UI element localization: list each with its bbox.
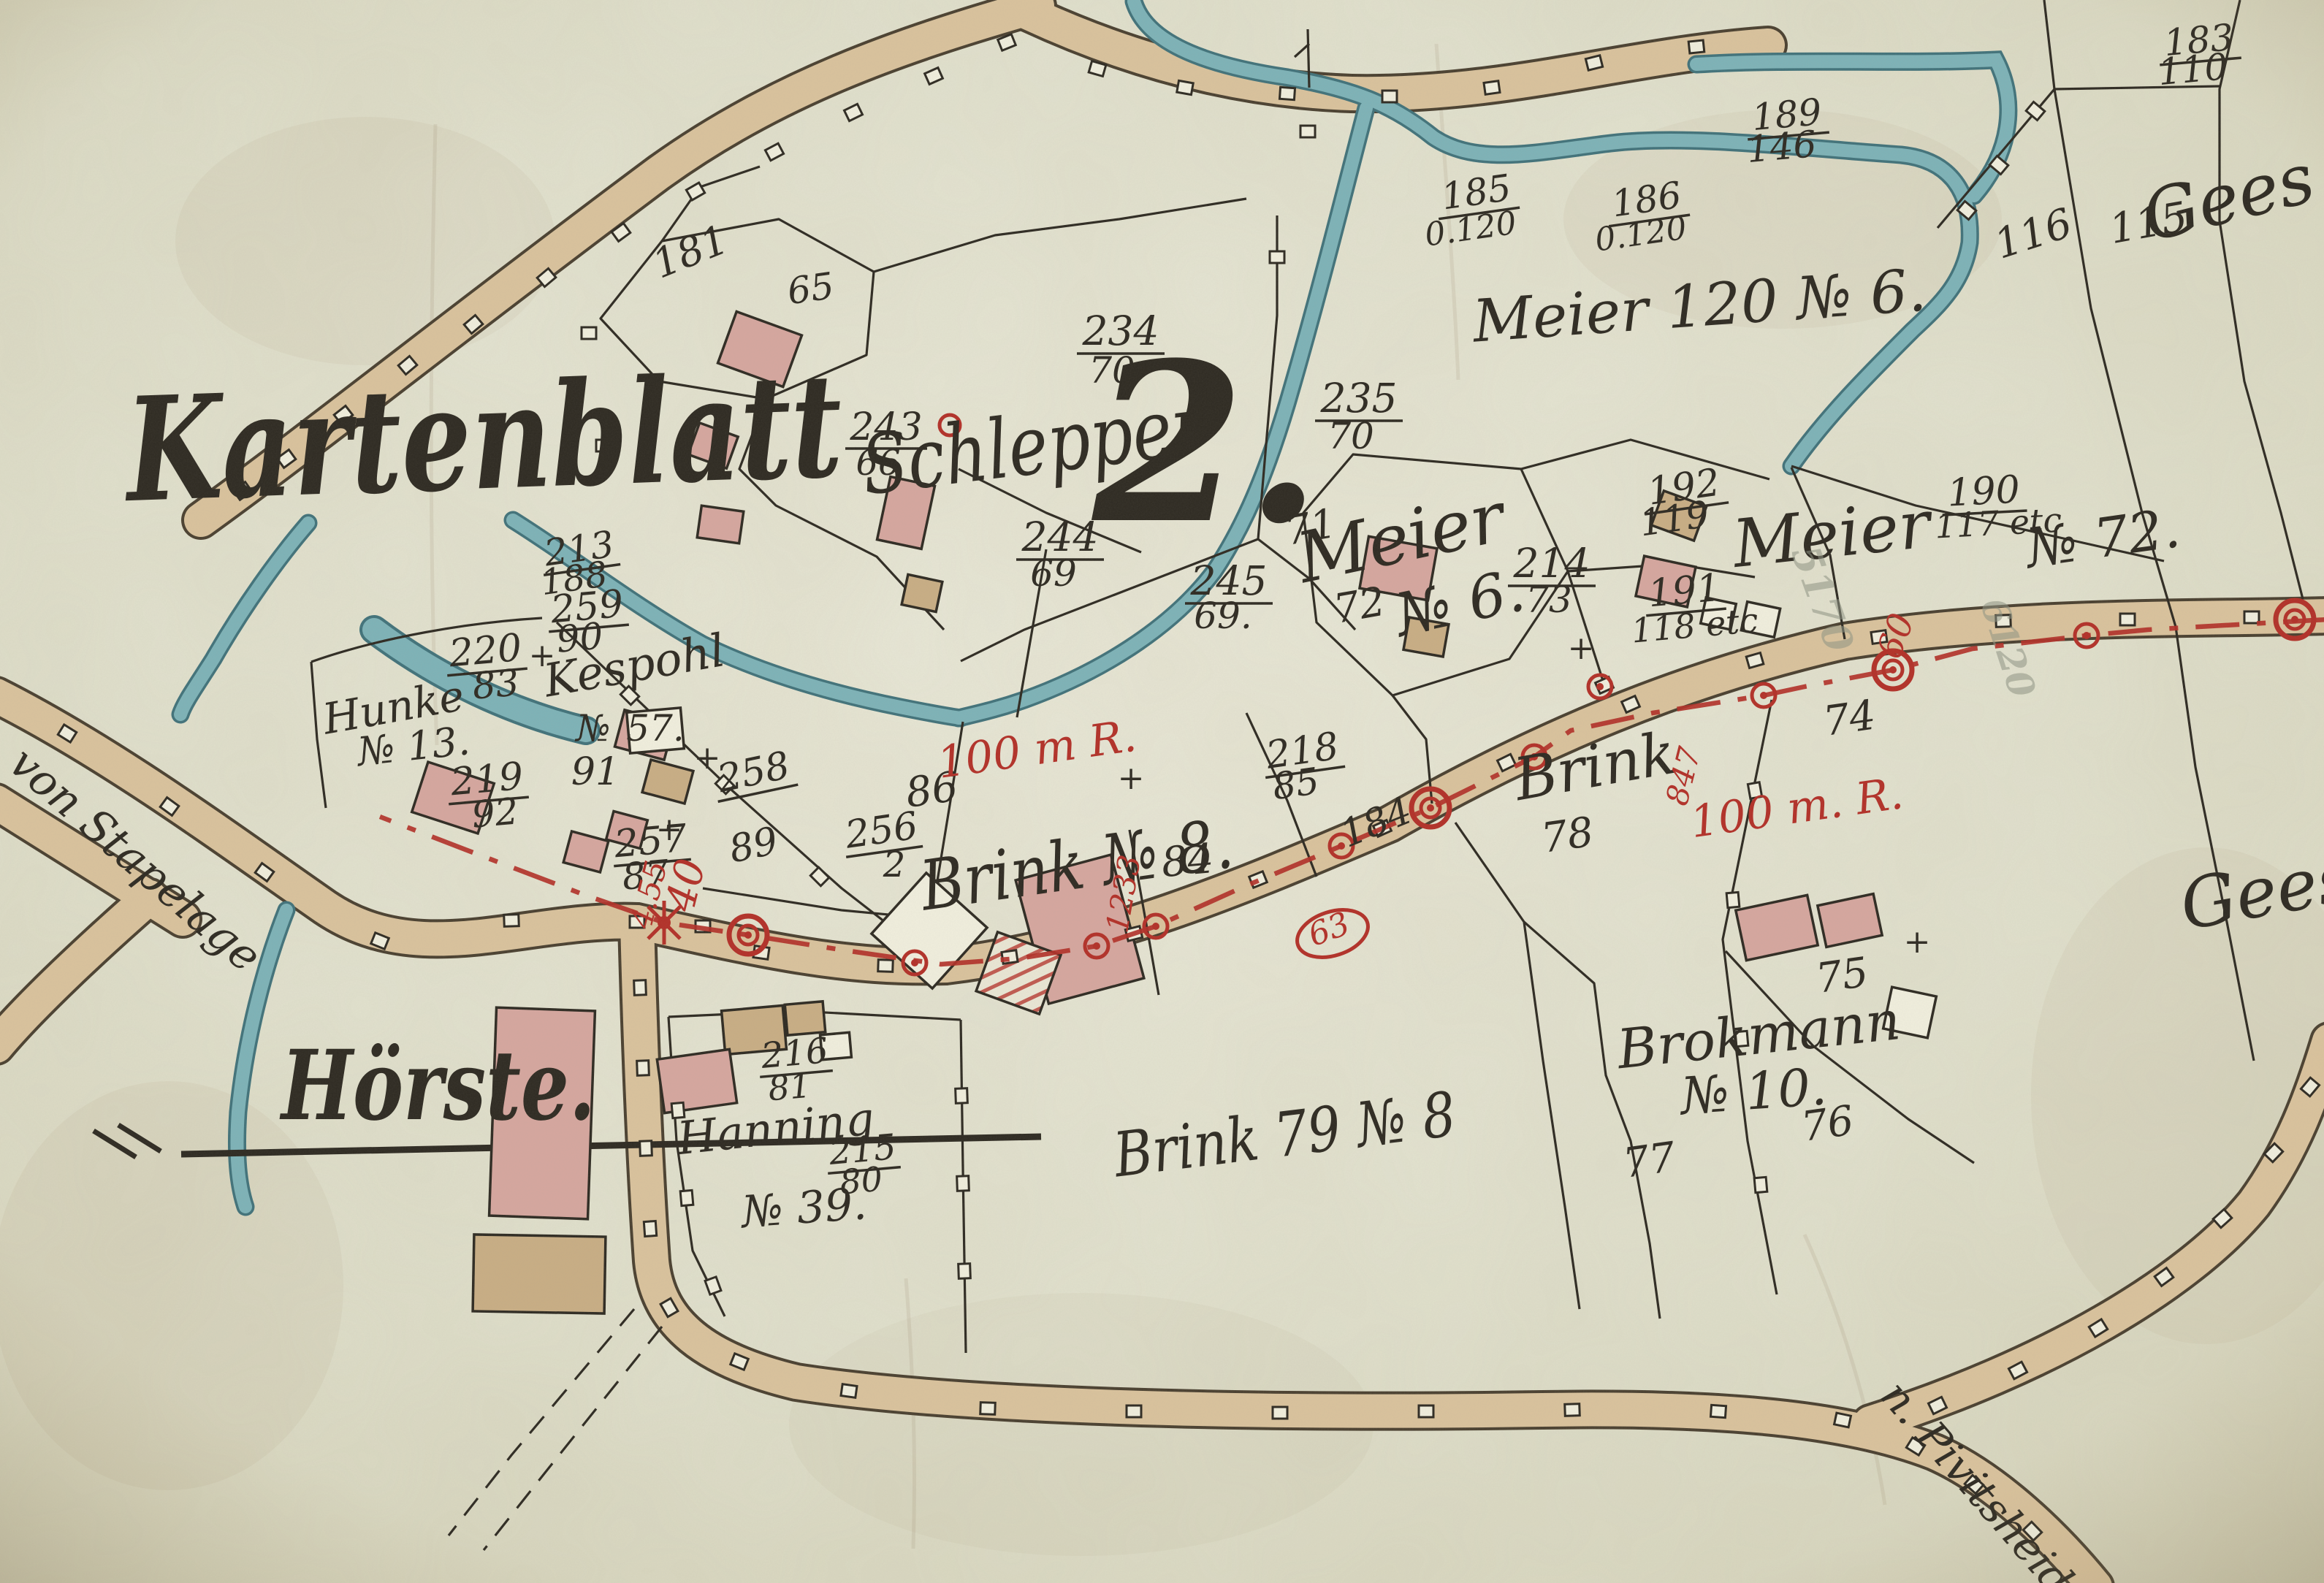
map-canvas: Kartenblatt2.Hörste.Schleppervon Stapela…: [0, 0, 2324, 1583]
cadastral-map: Kartenblatt2.Hörste.Schleppervon Stapela…: [0, 0, 2324, 1583]
vignette-overlay: [0, 0, 2324, 1583]
